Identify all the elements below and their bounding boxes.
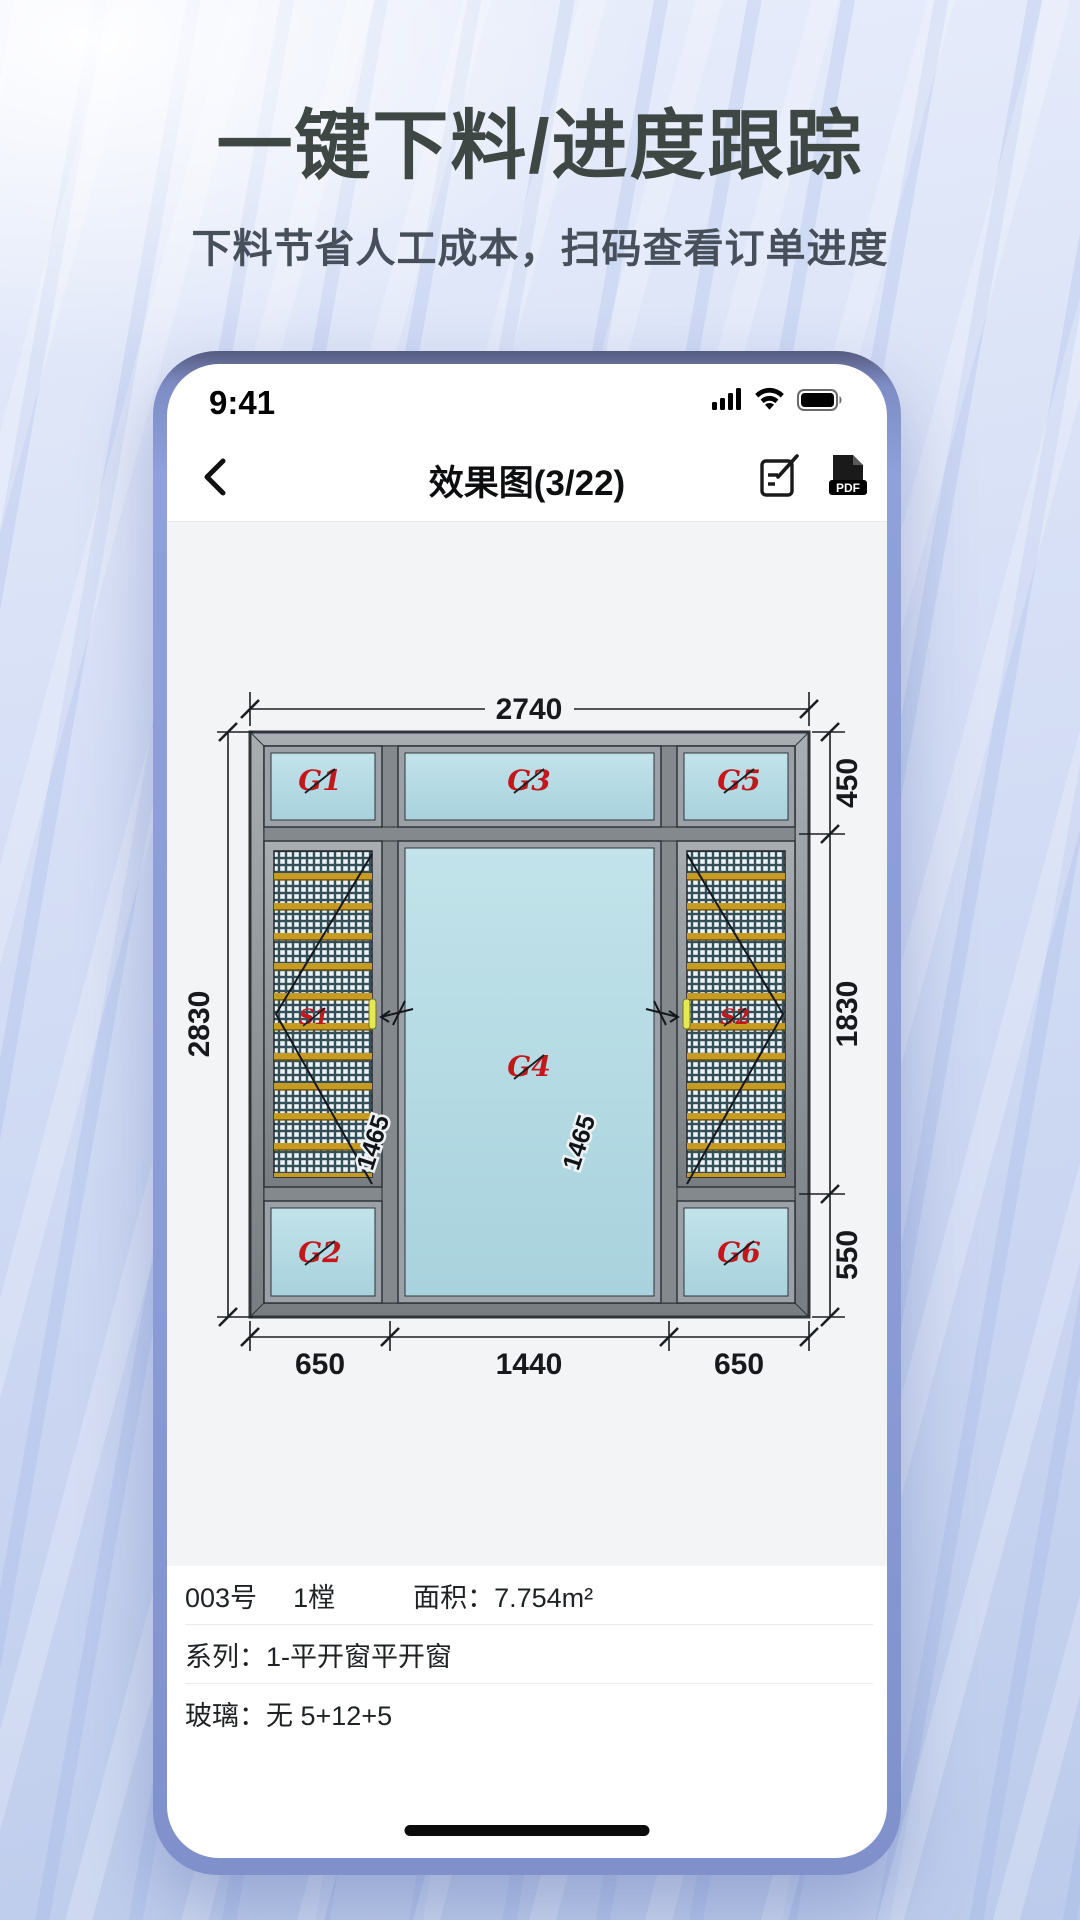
pdf-export-button[interactable]: PDF (827, 453, 869, 499)
status-icons (712, 387, 843, 413)
pdf-label: PDF (836, 481, 860, 495)
nav-actions: PDF (759, 453, 869, 499)
info-row-glass: 玻璃：无 5+12+5 (167, 1684, 887, 1742)
unit-count: 1樘 (293, 1576, 335, 1615)
page-title: 一键下料/进度跟踪 (0, 84, 1080, 194)
dim-bottom-center: 1440 (496, 1348, 563, 1381)
dim-top: 2740 (496, 693, 563, 726)
phone-screen: 9:41 (167, 364, 887, 1858)
order-number: 003号 (185, 1576, 257, 1615)
order-info: 003号 1樘 面积：7.754m² 系列：1-平开窗平开窗 玻璃：无 5+12… (167, 1566, 887, 1742)
dim-left: 2830 (183, 991, 216, 1058)
cellular-signal-icon (712, 387, 742, 413)
dim-bottom-left: 650 (295, 1348, 345, 1381)
handle-left (369, 999, 376, 1029)
status-time: 9:41 (209, 384, 275, 422)
info-row-series: 系列：1-平开窗平开窗 (167, 1625, 887, 1683)
edit-note-button[interactable] (759, 453, 801, 499)
dim-right-top: 450 (831, 758, 864, 808)
pdf-file-icon: PDF (827, 453, 869, 499)
series-value: 系列：1-平开窗平开窗 (185, 1635, 452, 1674)
marketing-header: 一键下料/进度跟踪 下料节省人工成本，扫码查看订单进度 (0, 84, 1080, 274)
status-bar: 9:41 (167, 384, 887, 424)
note-edit-icon (759, 453, 801, 499)
dim-bottom-right: 650 (714, 1348, 764, 1381)
wifi-icon (754, 387, 785, 413)
info-row-basic: 003号 1樘 面积：7.754m² (167, 1566, 887, 1624)
home-indicator-bar[interactable] (405, 1825, 650, 1836)
phone-mockup: 9:41 (153, 351, 901, 1875)
drawing-canvas: G1 G3 G5 G4 G2 G6 S1 S2 1465 (167, 521, 887, 1566)
dim-right-mid: 1830 (831, 981, 864, 1048)
area-value: 面积：7.754m² (413, 1576, 593, 1615)
nav-bar: 效果图(3/22) PDF (167, 441, 887, 513)
handle-right (683, 999, 690, 1029)
battery-full-icon (797, 387, 843, 413)
dim-right-bottom: 550 (831, 1230, 864, 1280)
glass-spec-value: 玻璃：无 5+12+5 (185, 1694, 392, 1733)
window-diagram: G1 G3 G5 G4 G2 G6 S1 S2 1465 (167, 522, 887, 1567)
page-subtitle: 下料节省人工成本，扫码查看订单进度 (0, 216, 1080, 274)
